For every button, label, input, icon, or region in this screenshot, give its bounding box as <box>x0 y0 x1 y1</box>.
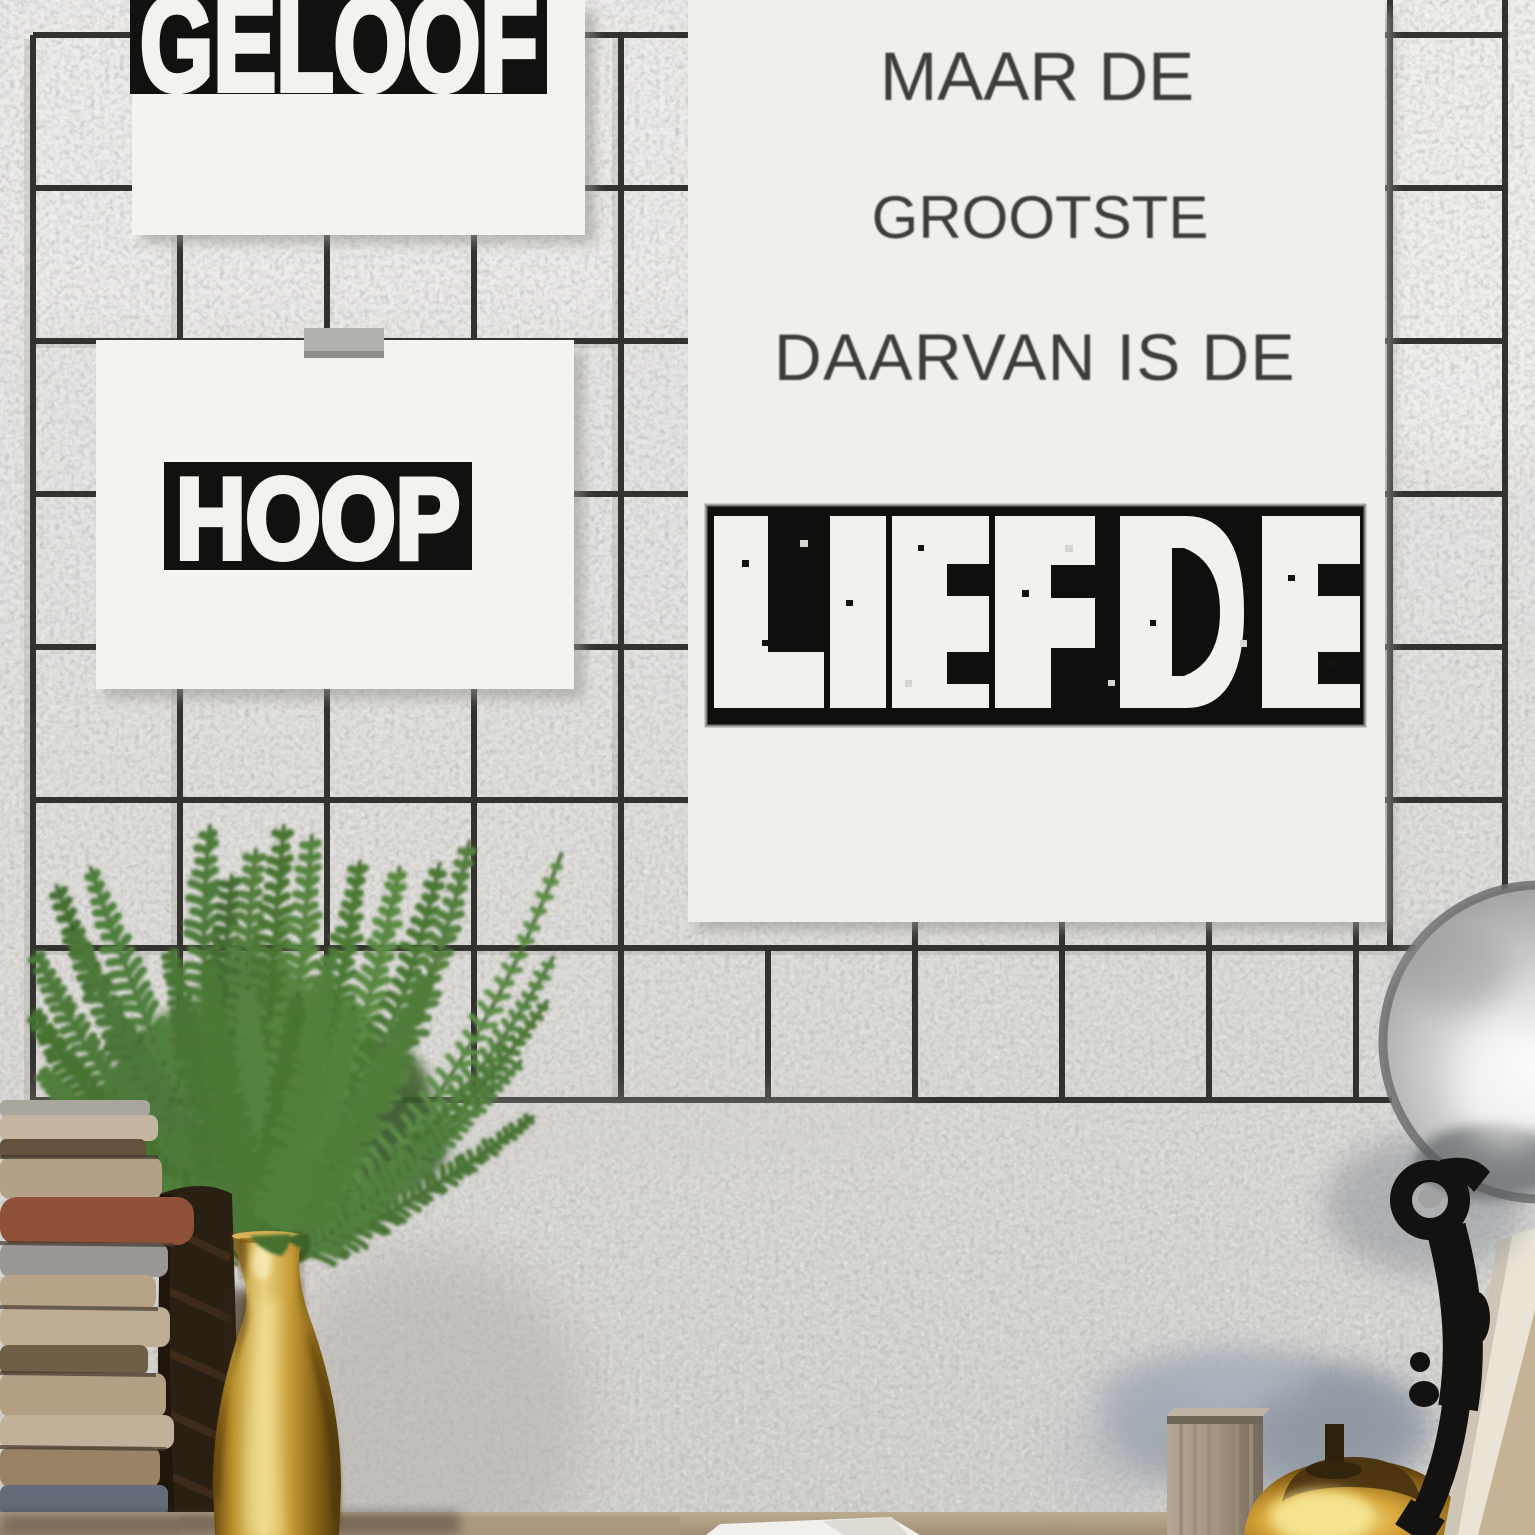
svg-text:MAAR DE: MAAR DE <box>880 38 1194 115</box>
svg-text:GROOTSTE: GROOTSTE <box>872 184 1209 251</box>
svg-text:GELOOF: GELOOF <box>140 0 538 119</box>
svg-text:DAARVAN IS DE: DAARVAN IS DE <box>774 320 1296 394</box>
svg-text:HOOP: HOOP <box>176 456 460 583</box>
